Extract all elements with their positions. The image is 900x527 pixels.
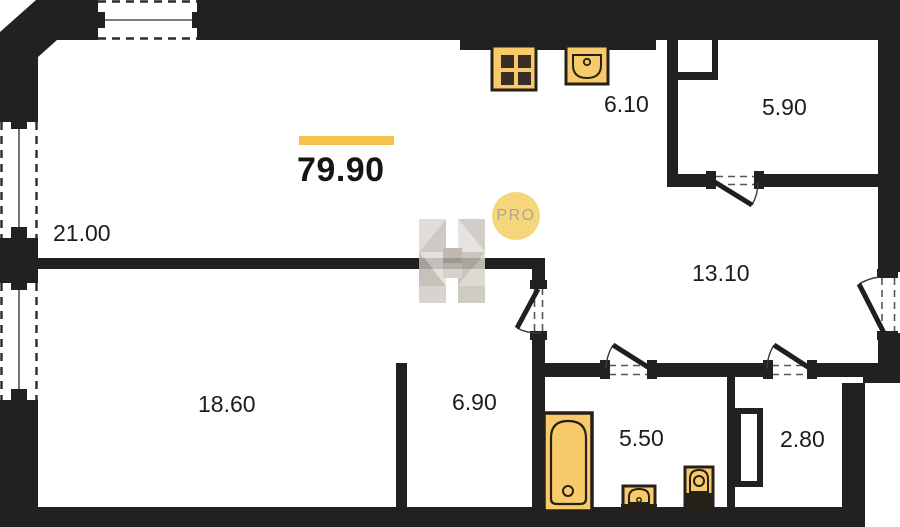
room-area-13-10: 13.10 bbox=[692, 261, 750, 285]
floor-plan: 79.90 21.00 6.10 5.90 13.10 18.60 6.90 5… bbox=[0, 0, 900, 527]
pro-badge: PRO bbox=[492, 192, 540, 240]
kitchen-soffit-wall bbox=[460, 40, 656, 50]
right-wall-lower bbox=[842, 383, 865, 510]
door-storage bbox=[706, 171, 764, 205]
room-area-2-80: 2.80 bbox=[780, 427, 825, 451]
door-arc bbox=[859, 277, 879, 284]
room-area-5-90: 5.90 bbox=[762, 95, 807, 119]
bath-top-wall-1 bbox=[545, 363, 602, 377]
window-left-lower bbox=[2, 279, 37, 400]
left-wall-mid bbox=[0, 238, 38, 283]
room-area-6-10: 6.10 bbox=[604, 92, 649, 116]
bath-top-wall-3 bbox=[817, 363, 863, 377]
door-bathroom bbox=[600, 345, 657, 379]
kitchen-divider-stub bbox=[667, 174, 712, 187]
toilet-icon bbox=[684, 467, 714, 512]
accent-bar bbox=[299, 136, 394, 145]
window-left-upper bbox=[2, 118, 37, 238]
floor-plan-drawing bbox=[0, 0, 900, 527]
washbasin-icon bbox=[621, 486, 657, 512]
kitchen-sink-icon bbox=[566, 46, 608, 84]
door-corridor bbox=[517, 280, 547, 340]
fixtures bbox=[492, 46, 714, 512]
chamfer-wall bbox=[0, 0, 98, 57]
bathtub-icon bbox=[544, 413, 592, 511]
top-wall bbox=[197, 0, 878, 40]
bottom-wall bbox=[0, 507, 865, 527]
bath-top-wall-2 bbox=[657, 363, 765, 377]
door-entry bbox=[859, 269, 898, 340]
door-leaf bbox=[517, 289, 538, 328]
total-area-label: 79.90 bbox=[297, 151, 385, 190]
door-leaf bbox=[859, 284, 884, 333]
window-top bbox=[94, 2, 203, 39]
bedroom-partition-wall bbox=[396, 363, 407, 510]
room-area-5-50: 5.50 bbox=[619, 426, 664, 450]
duct-niche bbox=[735, 408, 763, 487]
shaft-edge-bottom bbox=[678, 72, 718, 80]
right-step-wall bbox=[863, 363, 900, 383]
storage-bottom-wall bbox=[757, 174, 878, 187]
room-area-21-00: 21.00 bbox=[53, 221, 111, 245]
door-leaf bbox=[613, 345, 651, 369]
door-wc bbox=[763, 345, 817, 379]
wc-divider-wall bbox=[727, 377, 735, 510]
kitchen-divider-wall bbox=[667, 40, 678, 187]
right-wall-upper bbox=[878, 0, 900, 272]
duct-niche-inner bbox=[741, 414, 757, 481]
stove-icon bbox=[492, 46, 536, 90]
room-area-18-60: 18.60 bbox=[198, 392, 256, 416]
left-wall-upper bbox=[0, 57, 38, 122]
door-leaf bbox=[774, 345, 811, 369]
room-area-6-90: 6.90 bbox=[452, 390, 497, 414]
watermark-logo-icon bbox=[419, 219, 485, 303]
